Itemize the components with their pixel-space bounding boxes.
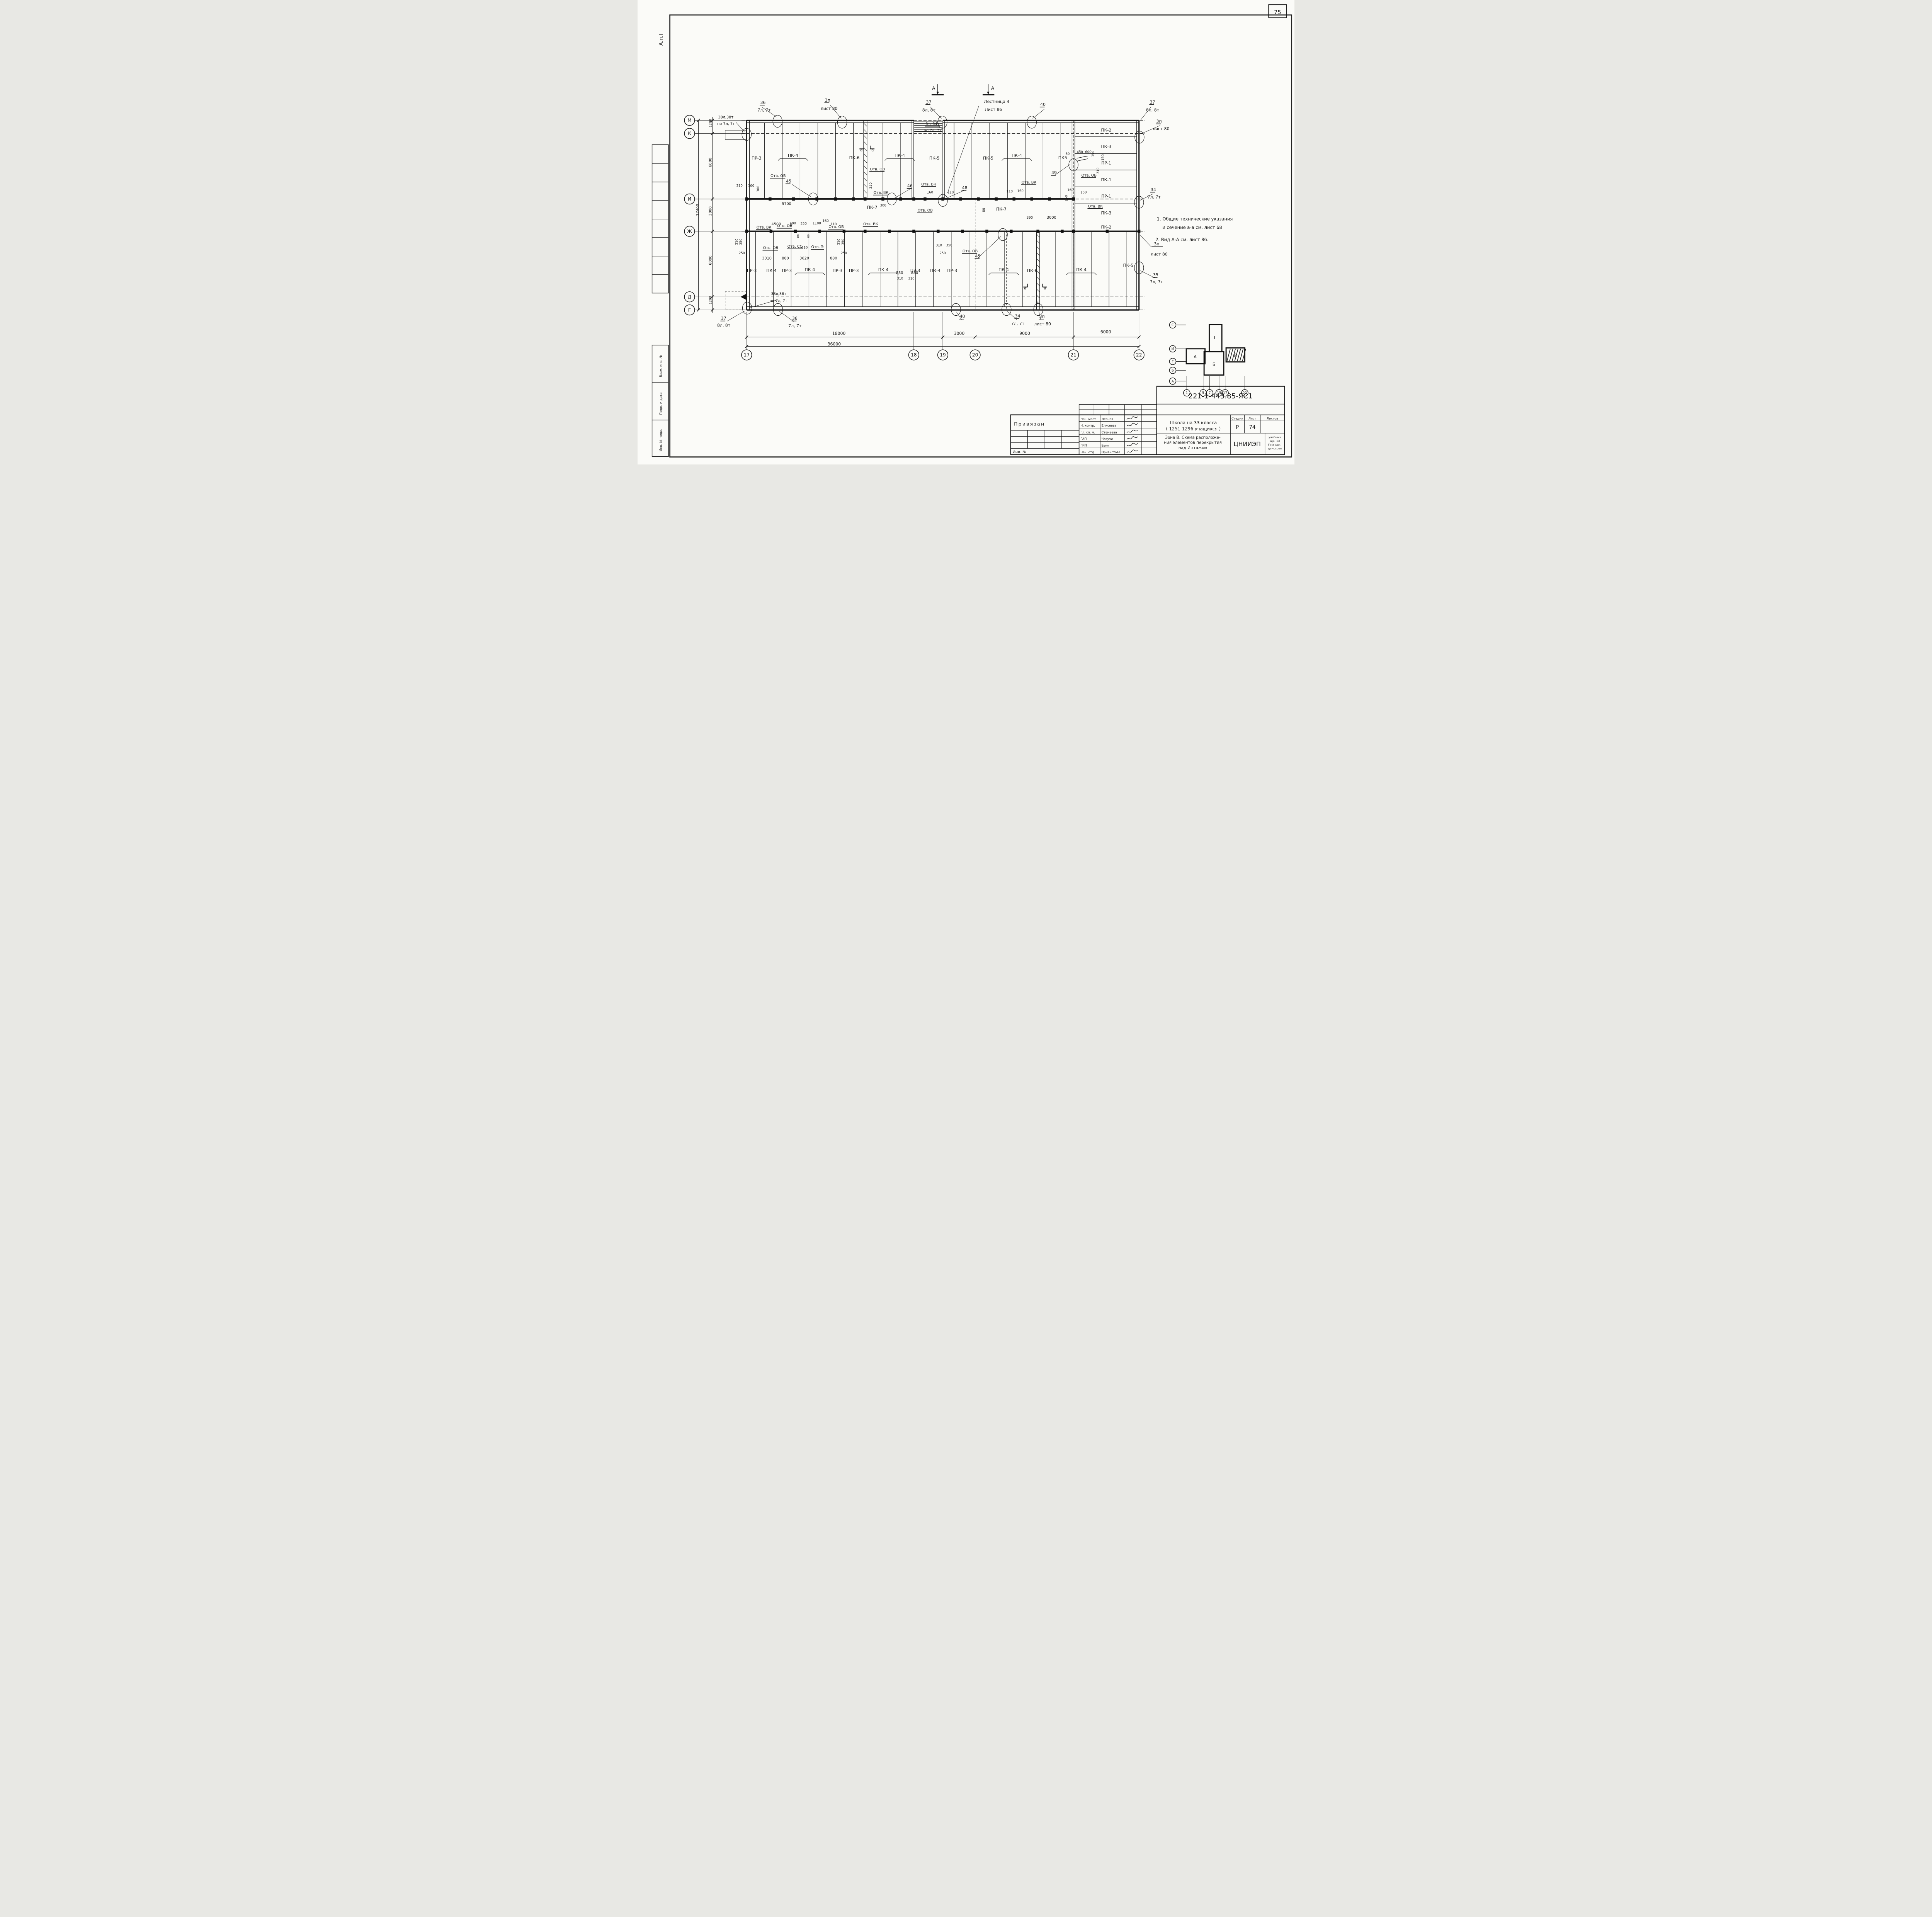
plan-label: ПР-3 (833, 268, 843, 273)
page: { "sheet": { "page_number": "75", "corne… (638, 0, 1294, 464)
plan-label: 80 (807, 234, 810, 238)
plan-label: 160 (927, 190, 933, 194)
plan-label: 3000 (1047, 216, 1056, 220)
plan-label: а (871, 148, 874, 152)
axis-letter-label: И (688, 196, 691, 202)
note-line: 2. Вид А-А см. лист 86. (1155, 237, 1208, 242)
plan-label: Отв. СС (787, 245, 803, 249)
plan-label: 38л,38т (718, 116, 733, 120)
plan-label: ПК-4 (1076, 267, 1087, 272)
plan-label: 880 (830, 256, 837, 260)
plan-label: 48 (962, 185, 968, 191)
plan-label: 45 (786, 179, 791, 184)
plan-label: Лист 86 (985, 107, 1002, 112)
note-line: и сечение а-а см. лист 68 (1162, 225, 1222, 230)
org-branch: учебных (1269, 435, 1281, 439)
plan-label: Отв. ВК (874, 191, 889, 195)
plan-label: 7л, 7т (1150, 279, 1163, 284)
plan-label: по 7л, 7т (924, 128, 942, 133)
plan-label: 5т, 54т (925, 122, 939, 126)
plan-label: 310 (897, 276, 903, 280)
plan-label: 80 (796, 234, 800, 238)
plan-label: 7л, 7т (757, 107, 771, 112)
stage-value: Р (1236, 425, 1239, 430)
plan-label: а (1024, 286, 1026, 291)
signature-name: Чавучи (1102, 437, 1113, 441)
plan-label: 5700 (782, 202, 791, 206)
side-cell-label: Подп. и дата (659, 393, 663, 415)
plan-label: ПК5 (1058, 155, 1067, 160)
ref-label: 3п (1154, 242, 1159, 247)
sheet-title: над 2 этажом (1179, 446, 1207, 450)
plan-label: 46 (907, 184, 913, 189)
plan-label: 7л, 7т (1011, 321, 1025, 326)
signature-role: ГИП (1080, 444, 1087, 447)
plan-label: 250 (739, 251, 745, 255)
plan-label: 350 (801, 222, 807, 226)
plan-label: 8л, 8т (1146, 107, 1160, 112)
list-value: 74 (1249, 425, 1255, 430)
signature-name: Стамеева (1102, 430, 1117, 434)
plan-label: ПР-3 (747, 268, 757, 273)
plan-label: 9000 (1019, 331, 1030, 336)
plan-label: 450 (1077, 150, 1083, 154)
org-branch: Госграж- (1268, 443, 1282, 447)
plan-label: Отв. ОВ (770, 174, 786, 178)
plan-label: 40 (1040, 102, 1046, 107)
plan-label: 36 (792, 316, 798, 321)
plan-label: 160 (823, 219, 829, 223)
plan-label: Отв. Э (811, 245, 824, 249)
plan-label: 38л,38т (771, 292, 786, 296)
plan-label: 310 (908, 276, 914, 280)
plan-label: 37 (721, 316, 726, 321)
plan-label: 390 (1027, 216, 1033, 219)
plan-label: ПР-3 (752, 156, 762, 161)
plan-label: ПК-2 (1101, 128, 1112, 133)
plan-label: 3620 (799, 256, 809, 260)
axis-number-label: 21 (1070, 352, 1076, 358)
plan-label: 1200 (708, 296, 712, 304)
plan-label: ПК-7 (996, 207, 1007, 212)
plan-label: ПР-3 (782, 268, 792, 273)
signature-name: Елисеева (1102, 424, 1117, 427)
corner-mark: А.п.I (658, 34, 664, 46)
plan-label: 45 (975, 253, 981, 259)
plan-label: 110 (1007, 189, 1013, 193)
project-name-2: ( 1251-1296 учащихся ) (1166, 426, 1221, 432)
plan-label: Отв. ВК (921, 182, 936, 187)
plan-label: Отв. ОВ (963, 249, 978, 253)
plan-label: ПК-6 (849, 155, 860, 160)
plan-label: ПК-4 (788, 153, 798, 158)
doc-number: 221-1-443.85-ЯС1 (1188, 392, 1252, 400)
sheet-title: Зона В. Схема расположе- (1165, 435, 1221, 440)
plan-label: 600 (1085, 150, 1091, 154)
plan-label: 350 (946, 243, 952, 247)
plan-label: Отв. ВК (1088, 204, 1103, 209)
plan-label: ПР-1 (1101, 194, 1111, 199)
plan-label: 36 (760, 100, 765, 105)
org-name: ЦНИИЭП (1233, 441, 1260, 448)
plan-label: 6000 (708, 158, 713, 167)
org-branch: зданий (1269, 439, 1280, 443)
plan-label: Лестница 4 (984, 99, 1009, 104)
plan-label: Отв. ОВ (828, 225, 844, 229)
plan-label: А (932, 86, 935, 91)
plan-label: 80 (982, 208, 986, 212)
signature-name: Леонов (1102, 417, 1114, 421)
plan-label: по 7л, 7т (717, 122, 735, 126)
plan-label: Отв. ОВ (918, 209, 933, 213)
keyplan-axis-label: 1 (1186, 391, 1188, 395)
plan-label: 300 (880, 203, 886, 207)
plan-label: 34 (1151, 187, 1156, 192)
plan-label: 35 (1153, 272, 1158, 277)
plan-label: 3000 (954, 331, 965, 336)
plan-label: 350 (739, 239, 743, 245)
keyplan-block-label: Г (1214, 335, 1217, 340)
sheet-title: ния элементов перекрытия (1164, 441, 1221, 445)
axis-number-label: 22 (1136, 352, 1142, 358)
list-label: Лист (1248, 417, 1256, 420)
plan-label: ПК-7 (867, 205, 878, 210)
plan-label: 150 (1091, 151, 1095, 157)
plan-label: 8л, 8т (717, 323, 731, 328)
plan-label: лист 80 (1153, 126, 1170, 131)
plan-label: ПК-5 (983, 156, 993, 161)
side-cell-label: Инв. № подл. (659, 429, 663, 451)
plan-label: ПК-4 (805, 267, 815, 272)
plan-label: Отв. ОВ (870, 167, 885, 172)
keyplan-block-label: А (1194, 354, 1197, 359)
plan-label: 150 (1101, 154, 1105, 160)
lists-label: Листов (1267, 417, 1278, 420)
plan-label: А (991, 86, 995, 91)
plan-label: 37 (1150, 100, 1155, 105)
plan-label: 160 (1017, 189, 1024, 193)
keyplan-axis-label: А (1172, 379, 1174, 383)
stage-label: Стадия (1231, 417, 1243, 420)
plan-label: 6000 (708, 255, 713, 265)
axis-number-label: 18 (911, 352, 917, 358)
keyplan-axis-label: Г (1172, 359, 1173, 363)
plan-label: 250 (841, 251, 847, 255)
plan-label: по 7л, 7т (770, 299, 787, 303)
plan-label: 3310 (762, 256, 772, 260)
signature-role: Нач. маст (1080, 417, 1096, 421)
plan-label: 3п (1039, 314, 1045, 319)
org-branch: данстроя (1268, 447, 1282, 450)
plan-label: 34 (1015, 314, 1020, 319)
plan-label: ПК-4 (895, 153, 905, 158)
keyplan-block-label: Б (1213, 362, 1215, 367)
plan-label: 880 (782, 256, 789, 260)
plan-label: ПК-5 (1123, 263, 1133, 268)
axis-letter-label: М (687, 118, 691, 123)
keyplan-axis-label: И (1172, 347, 1174, 351)
plan-label: ПК-4 (930, 268, 940, 273)
axis-letter-label: К (688, 131, 691, 136)
plan-label: ПР-3 (947, 268, 957, 273)
plan-label: 310 (1096, 167, 1100, 173)
plan-label: 310 (936, 243, 942, 247)
plan-label: 300 (748, 184, 754, 187)
axis-number-label: 20 (972, 352, 978, 358)
plan-label: 49 (1051, 170, 1057, 175)
plan-label: 3000 (708, 206, 713, 216)
signature-name: Евко (1102, 444, 1109, 447)
plan-label: 300 (756, 186, 760, 192)
plan-label: 80 (1065, 152, 1070, 156)
plan-label: 18000 (832, 331, 846, 336)
plan-label: ПК-6 (1027, 268, 1037, 273)
project-name: Школа на 33 класса (1170, 420, 1217, 425)
keyplan-block-label: В (1234, 353, 1237, 358)
plan-label: 150 (1080, 190, 1087, 194)
plan-label: 1200 (708, 119, 712, 128)
plan-label: а (860, 148, 862, 152)
plan-label: 36000 (828, 342, 841, 347)
signature-role: ГАП (1080, 437, 1087, 441)
plan-label: 8л, 8т (922, 107, 936, 112)
axis-letter-label: Д (688, 294, 691, 299)
plan-label: 37 (926, 100, 931, 105)
plan-label: 250 (940, 251, 946, 255)
note-line: 1. Общие технические указания (1157, 216, 1233, 222)
keyplan-axis-label: Б (1172, 368, 1174, 372)
plan-label: Отв. ВК (1022, 180, 1037, 185)
plan-label: 6000 (1100, 330, 1111, 335)
plan-label: ПК-5 (929, 156, 940, 161)
plan-label: 310 (736, 184, 743, 187)
plan-label: лист 80 (1034, 321, 1051, 327)
signature-role: Нач. отд. (1080, 451, 1095, 454)
plan-label: ПК-4 (998, 267, 1009, 272)
signature-role: Н. контр. (1080, 424, 1095, 427)
plan-label: 1100 (813, 221, 821, 225)
plan-label: 880 (896, 271, 903, 275)
drawing-sheet: 75 А.п.I Взам. инв. № Подп. и дата Инв. … (638, 0, 1294, 464)
axis-number-label: 17 (744, 352, 750, 358)
plan-label: а (1044, 286, 1046, 291)
plan-label: Отв. ОВ (777, 224, 792, 228)
plan-label: ПК-4 (766, 268, 777, 273)
plan-label: 7л, 7т (788, 323, 802, 328)
plan-label: 110 (947, 190, 954, 194)
plan-label: Отв. ВК (757, 225, 772, 230)
plan-label: 150 (1064, 195, 1068, 201)
plan-label: ПК-3 (1101, 211, 1112, 216)
plan-label: ПР-3 (910, 268, 920, 273)
plan-label: ПК-4 (1012, 153, 1022, 158)
plan-label: 310 (735, 239, 738, 245)
keyplan-axis-label: С (1172, 323, 1174, 327)
plan-label: 160 (1067, 188, 1073, 192)
plan-label: 40 (960, 314, 965, 319)
plan-label: ПК-2 (1101, 225, 1112, 230)
inventory-label: Инв. № (1013, 450, 1027, 454)
plan-label: ПК-3 (1101, 144, 1112, 149)
axis-number-label: 19 (940, 352, 946, 358)
plan-label: ПК-4 (878, 267, 889, 272)
side-cell-label: Взам. инв. № (659, 355, 663, 378)
signature-name: Привистова (1102, 451, 1121, 454)
approved-label: Привязан (1014, 421, 1045, 427)
plan-label: Отв. ВК (863, 222, 878, 226)
plan-label: 7л, 7т (1148, 195, 1161, 200)
plan-label: 310 (837, 239, 840, 245)
plan-label: ПР-3 (849, 268, 859, 273)
plan-label: 17400 (696, 204, 700, 216)
axis-letter-label: Г (688, 307, 691, 313)
axis-letter-label: Ж (687, 229, 692, 234)
plan-label: Отв. ОВ (1082, 173, 1097, 178)
ref-label: лист 80 (1151, 252, 1168, 257)
page-number: 75 (1274, 9, 1281, 15)
plan-label: ПК-1 (1101, 177, 1112, 182)
plan-label: 350 (869, 182, 872, 189)
plan-label: ПР-1 (1101, 160, 1111, 165)
signature-role: Гл. сп. м. (1080, 430, 1095, 434)
plan-label: 350 (841, 239, 845, 245)
plan-label: 3п (1156, 119, 1162, 124)
plan-label: лист 80 (821, 106, 838, 111)
plan-label: Отв. ОВ (763, 246, 778, 250)
plan-label: 110 (801, 245, 808, 249)
plan-label: 3п (825, 98, 830, 103)
